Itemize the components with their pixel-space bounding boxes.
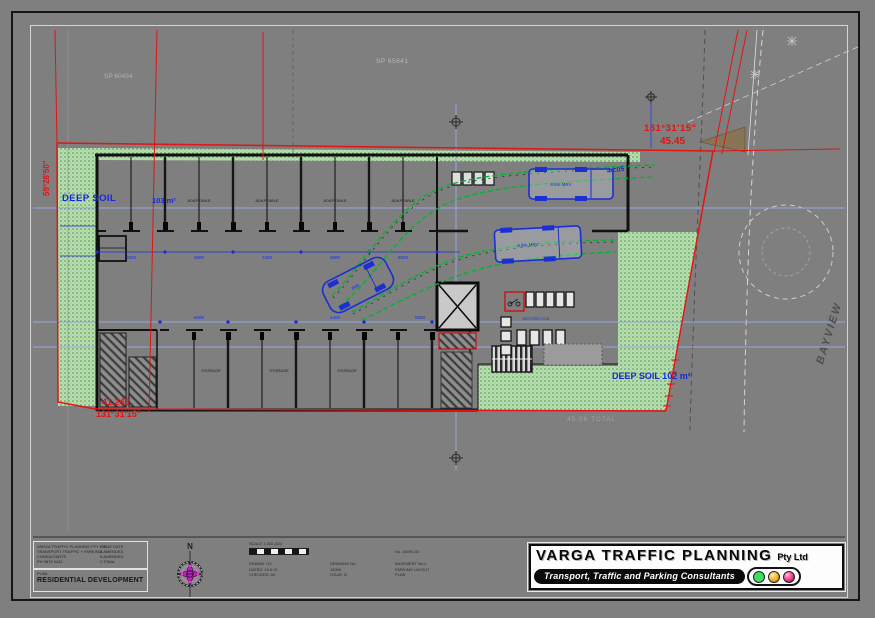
firm-line: PH 9876 5432 xyxy=(37,559,107,564)
project-title-box: PLAN: RESIDENTIAL DEVELOPMENT xyxy=(33,569,148,592)
deep-soil-right-zone xyxy=(618,232,699,410)
traffic-light-pink-icon xyxy=(783,571,795,583)
bay-label: STORAGE xyxy=(201,368,221,373)
drawing-ref: No. 16090-02 xyxy=(395,549,419,555)
traffic-light-amber-icon xyxy=(768,571,780,583)
deep-soil-right-label: DEEP SOIL 102 m² xyxy=(612,371,691,381)
deep-soil-left-area: 103 m² xyxy=(152,196,176,205)
bay-label: STORAGE xyxy=(269,368,289,373)
issue-line: C FINAL xyxy=(100,559,124,564)
company-name: VARGA TRAFFIC PLANNING xyxy=(536,547,772,564)
scale-title: SCALE 1:200 (A3) xyxy=(249,541,282,547)
dim-value: 6000 xyxy=(194,315,205,320)
dim-value: 5800 xyxy=(194,255,205,260)
note-line: ISSUE: B xyxy=(330,572,357,578)
bay-label: ADAPTABLE xyxy=(187,198,211,203)
firm-info-box: VARGA TRAFFIC PLANNING PTY LTD TRANSPORT… xyxy=(33,541,148,569)
dim-value: 2400 xyxy=(330,315,341,320)
north-label: N xyxy=(187,542,193,551)
bay-label: ADAPTABLE xyxy=(391,198,415,203)
project-title: RESIDENTIAL DEVELOPMENT xyxy=(37,577,143,584)
bike-bay xyxy=(505,292,524,311)
dim-value: 2400 xyxy=(262,255,273,260)
title-block: VARGA TRAFFIC PLANNING Pty Ltd Transport… xyxy=(527,542,846,592)
design-car: B99 xyxy=(319,254,397,316)
garbage-truck-2: 8.8m MRV xyxy=(494,224,582,264)
company-suffix: Pty Ltd xyxy=(777,552,808,562)
note-line: CHECKED: AV xyxy=(249,572,278,578)
roundabout-dashed-circle xyxy=(739,205,833,299)
graphic-scale-bar xyxy=(249,548,309,555)
corner-splay-wedge xyxy=(700,127,745,152)
lift-core xyxy=(437,283,478,330)
bay-label: ADAPTABLE xyxy=(323,198,347,203)
deep-soil-left-label: DEEP SOIL xyxy=(62,193,116,204)
boundary-distance-top: 45.45 xyxy=(660,136,685,147)
boundary-bearing-bottom: 131°31'15" xyxy=(96,409,141,419)
lot-label-sp-top: SP 65841 xyxy=(376,58,408,65)
note-line: BASEMENT No.2 xyxy=(395,561,430,567)
plan-label: PLAN: xyxy=(37,571,49,576)
dim-value: 5800 xyxy=(330,255,341,260)
shaft-hatch-tall xyxy=(441,352,472,408)
truck-label: 8.8m MRV xyxy=(550,182,571,187)
boundary-bearing-top: 131°31'15" xyxy=(644,123,697,134)
company-tagline: Transport, Traffic and Parking Consultan… xyxy=(534,569,745,584)
car-label: B99 xyxy=(351,283,361,291)
lot-label-sp-left: SP 60434 xyxy=(104,73,132,80)
plan-linework-svg: 5500 5800 2400 5800 5500 6000 2400 5800 … xyxy=(0,0,875,618)
deep-soil-left-zone xyxy=(58,148,97,406)
bay-label: STORAGE xyxy=(337,368,357,373)
stair-flight xyxy=(492,346,532,372)
shaft-hatch-red xyxy=(439,333,476,349)
bike-bay-label: MOTORCYCLE xyxy=(523,317,550,321)
boundary-bearing-left: 59°28'50" xyxy=(42,160,51,196)
dim-value: 5500 xyxy=(398,255,409,260)
site-plan-sheet: 5500 5800 2400 5800 5500 6000 2400 5800 … xyxy=(0,0,875,618)
dim-value: 5800 xyxy=(415,315,426,320)
garbage-truck-1: 8.8m MRV xyxy=(529,167,613,201)
note-line: PLAN xyxy=(395,572,430,578)
north-compass: N xyxy=(165,540,215,598)
ramp-hatch-b xyxy=(129,357,156,407)
boundary-distance-bottom: 41.245 xyxy=(102,397,130,407)
bay-label: ADAPTABLE xyxy=(255,198,279,203)
ramp-hatch-a xyxy=(100,333,126,407)
traffic-light-green-icon xyxy=(753,571,765,583)
note-line: DRAWING No. xyxy=(330,561,357,567)
dim-value: 5500 xyxy=(126,255,137,260)
vegetation-mark-icon xyxy=(751,36,798,79)
traffic-lights-logo xyxy=(747,567,801,586)
total-dimension-bottom: 45.06 TOTAL xyxy=(567,416,616,423)
